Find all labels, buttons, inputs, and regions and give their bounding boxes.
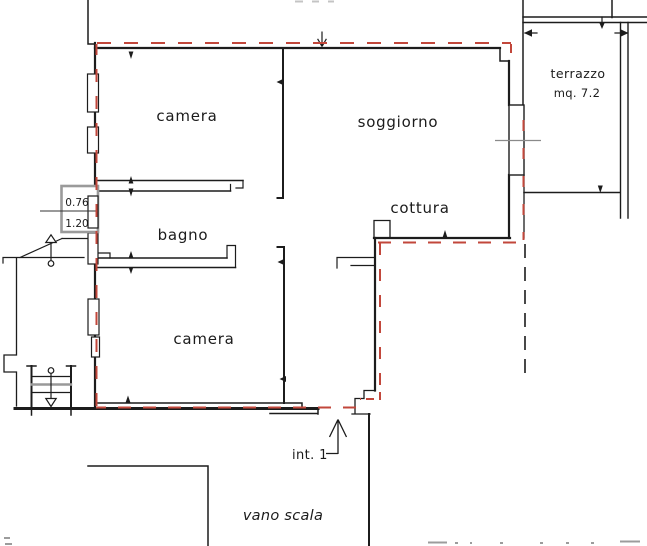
window-width-dim: 0.76 xyxy=(65,197,89,209)
window-height-dim: 1.20 xyxy=(65,218,88,230)
unit-number-label: int. 1 xyxy=(292,448,328,463)
floor-plan-page: 0.76 1.20 int. 1 xyxy=(0,0,647,546)
room-label-camera-top: camera xyxy=(156,107,217,125)
floor-plan-drawing: 0.76 1.20 int. 1 xyxy=(0,0,647,546)
stair-direction-arrow-circle xyxy=(48,261,54,267)
terrazzo-area-label: mq. 7.2 xyxy=(554,86,601,100)
stairwell-label: vano scala xyxy=(243,508,323,524)
room-label-camera-bottom: camera xyxy=(173,330,234,348)
room-label-terrazzo: terrazzo xyxy=(550,66,605,81)
room-label-soggiorno: soggiorno xyxy=(358,113,439,131)
stair-arrow-origin-circle xyxy=(48,368,54,374)
room-label-cottura: cottura xyxy=(390,199,449,217)
room-label-bagno: bagno xyxy=(158,226,209,244)
